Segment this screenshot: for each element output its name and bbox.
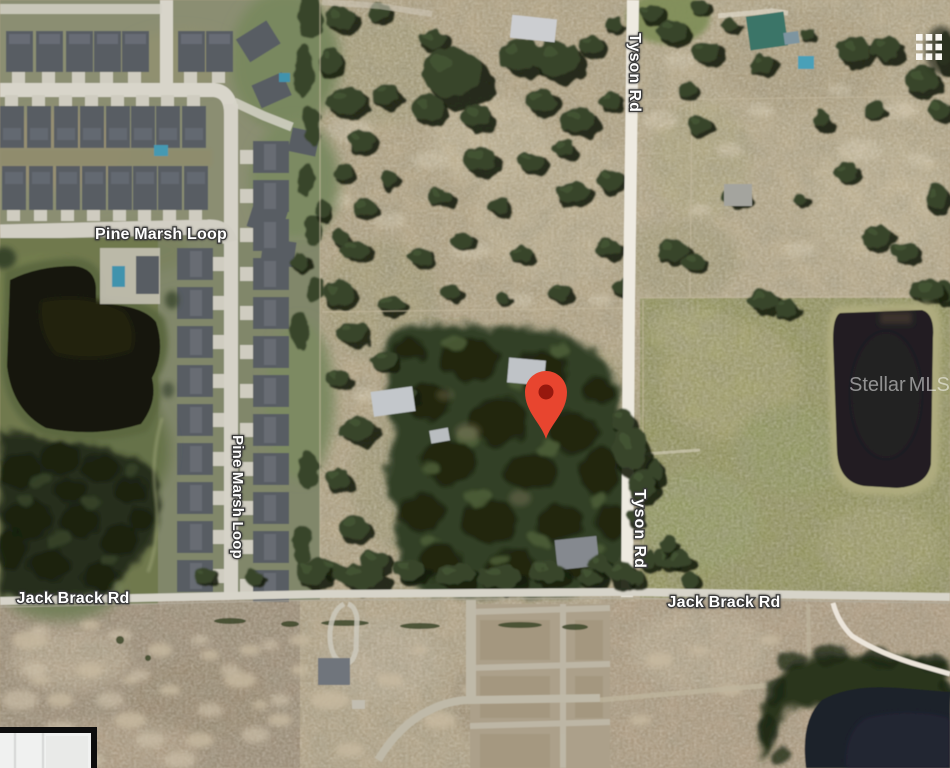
svg-text:Tyson Rd: Tyson Rd — [626, 33, 643, 113]
svg-text:Jack Brack Rd: Jack Brack Rd — [17, 590, 130, 607]
svg-text:StellarMLS: StellarMLS — [849, 374, 950, 396]
svg-text:Jack Brack Rd: Jack Brack Rd — [668, 594, 781, 611]
svg-text:Pine Marsh Loop: Pine Marsh Loop — [95, 226, 227, 243]
svg-text:Tyson Rd: Tyson Rd — [631, 489, 648, 569]
svg-text:Pine Marsh Loop: Pine Marsh Loop — [229, 435, 246, 559]
